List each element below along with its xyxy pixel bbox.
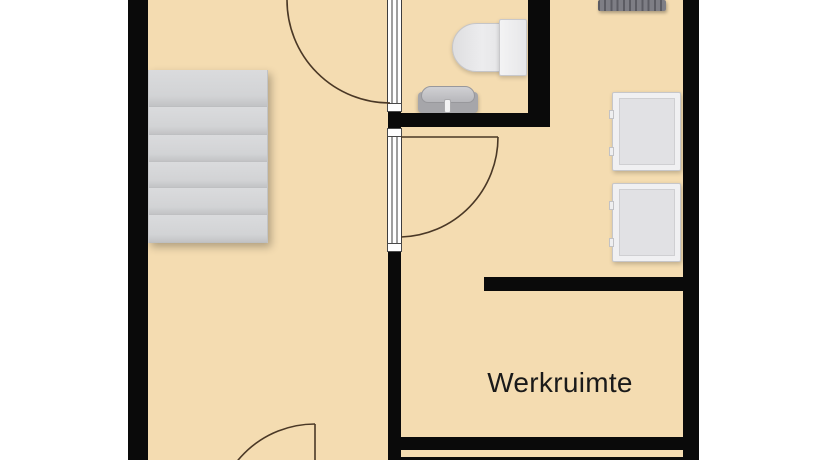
wall-werkruimte-bottom xyxy=(388,437,698,450)
floorplan: Werkruimte xyxy=(0,0,830,460)
toilet-bowl xyxy=(452,23,502,72)
wall-werkruimte-top xyxy=(484,277,698,291)
appliance-bottom-hinge-2 xyxy=(609,238,614,247)
appliance-top-hinge-1 xyxy=(609,110,614,119)
wall-outer-right xyxy=(683,0,699,460)
toilet-cistern xyxy=(499,19,527,76)
appliance-top-hinge-2 xyxy=(609,147,614,156)
sink-faucet xyxy=(444,99,451,113)
stair-tread-4 xyxy=(148,188,268,215)
door-panel-mid xyxy=(387,137,402,243)
door-panel-top xyxy=(387,0,402,103)
stair-landing xyxy=(148,70,268,107)
wall-outer-left xyxy=(128,0,148,460)
appliance-bottom xyxy=(612,183,681,262)
appliance-bottom-hinge-1 xyxy=(609,201,614,210)
stair-tread-2 xyxy=(148,135,268,162)
door-jamb-top xyxy=(387,103,402,112)
wall-toilet-bottom xyxy=(388,113,550,127)
room-label-werkruimte: Werkruimte xyxy=(487,367,633,399)
stair-tread-5 xyxy=(148,215,268,243)
stair-tread-3 xyxy=(148,162,268,188)
appliance-top xyxy=(612,92,681,171)
door-jamb-mid-lower xyxy=(387,243,402,252)
stair-tread-1 xyxy=(148,107,268,135)
door-jamb-mid-upper xyxy=(387,128,402,137)
wall-toilet-right xyxy=(528,0,550,127)
radiator xyxy=(598,0,666,11)
